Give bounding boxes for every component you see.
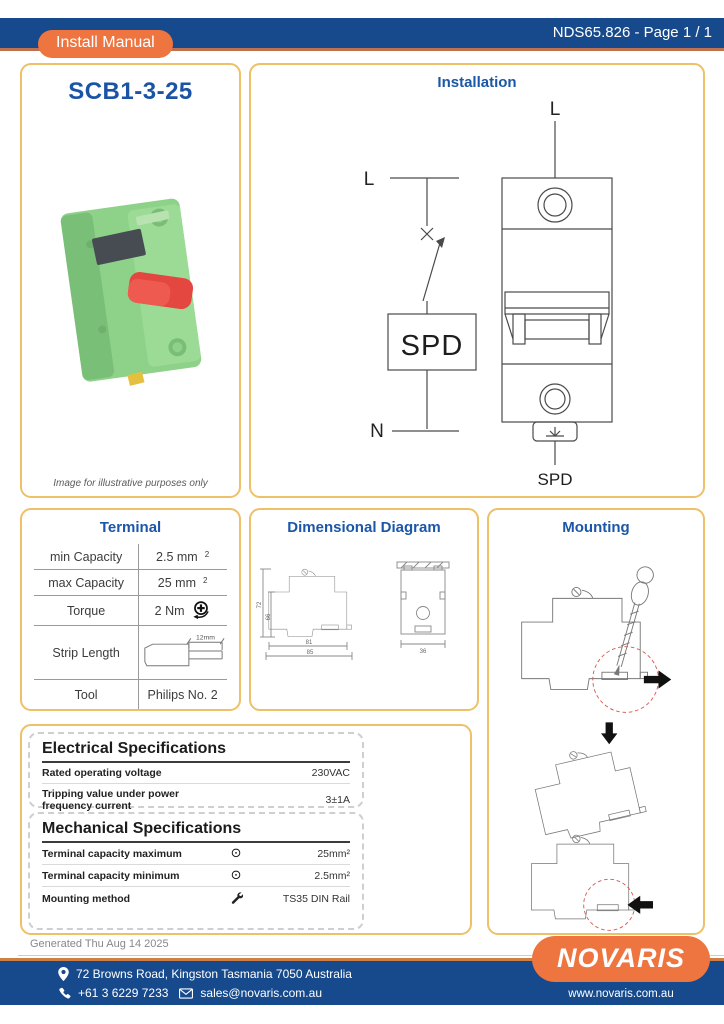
install-manual-badge: Install Manual	[38, 30, 173, 58]
down-arrow	[601, 722, 617, 744]
spd-box-label: SPD	[401, 330, 464, 362]
mounting-title: Mounting	[489, 519, 703, 536]
footer-address-row: 72 Browns Road, Kingston Tasmania 7050 A…	[58, 967, 352, 981]
footer-address: 72 Browns Road, Kingston Tasmania 7050 A…	[76, 967, 352, 981]
table-row: max Capacity 25 mm2	[34, 570, 227, 596]
wrench-icon	[214, 891, 257, 907]
spec-label: Rated operating voltage	[42, 767, 214, 779]
document-reference: NDS65.826 - Page 1 / 1	[553, 18, 712, 48]
footer-email: sales@novaris.com.au	[200, 986, 322, 1000]
spec-value: 2.5mm²	[258, 870, 350, 882]
unit-superscript: 2	[203, 576, 207, 585]
spec-row: Terminal capacity minimum ⊙ 2.5mm²	[42, 865, 350, 887]
mounting-steps-drawing	[489, 540, 703, 934]
spec-label: Tripping value under power frequency cur…	[42, 788, 196, 812]
electrical-specs-section: Electrical Specifications Rated operatin…	[28, 732, 364, 808]
table-row: min Capacity 2.5 mm2	[34, 544, 227, 570]
dimensional-title: Dimensional Diagram	[251, 519, 477, 536]
electrical-specs-title: Electrical Specifications	[42, 740, 350, 763]
terminal-title: Terminal	[22, 519, 239, 536]
push-left-arrow	[627, 896, 653, 914]
dim-width-inner: 81	[306, 640, 313, 646]
product-title: SCB1-3-25	[22, 78, 239, 106]
installation-title: Installation	[251, 74, 703, 91]
installation-diagram: L SPD N L SPD	[251, 93, 703, 493]
device-spd-label: SPD	[538, 470, 573, 489]
torque-screw-icon	[190, 600, 211, 621]
spec-value: 3±1A	[196, 794, 350, 806]
dim-depth: 36	[420, 649, 427, 655]
table-row: Torque 2 Nm	[34, 596, 227, 626]
image-caption: Image for illustrative purposes only	[22, 478, 239, 489]
mechanical-specs-title: Mechanical Specifications	[42, 820, 350, 843]
strip-length-drawing: 12mm	[138, 632, 228, 674]
product-panel: SCB1-3-25 Image for illustrative purpose…	[20, 63, 241, 498]
footer-contact-row: +61 3 6229 7233 sales@novaris.com.au	[58, 986, 322, 1000]
table-divider	[138, 544, 139, 709]
spec-label: Terminal capacity minimum	[42, 870, 214, 882]
strip-length-dim: 12mm	[196, 634, 215, 641]
product-photo	[34, 175, 230, 410]
row-label: Torque	[34, 604, 138, 618]
row-label: Strip Length	[34, 646, 138, 660]
novaris-logo: NOVARIS	[532, 936, 710, 982]
spec-label: Terminal capacity maximum	[42, 848, 214, 860]
table-row: Strip Length 12mm	[34, 626, 227, 680]
schematic-line-label: L	[364, 169, 375, 190]
schematic-neutral-label: N	[370, 421, 384, 442]
dimensional-drawing: 72 66 81 85 36	[251, 542, 477, 710]
installation-panel: Installation L SPD N L SPD	[249, 63, 705, 498]
spec-value: 230VAC	[214, 767, 350, 779]
dim-height-inner: 66	[266, 613, 272, 620]
row-value: 25 mm	[158, 576, 196, 590]
email-icon	[179, 988, 193, 999]
terminal-screw-icon: ⊙	[214, 869, 257, 882]
location-pin-icon	[58, 967, 69, 981]
terminal-screw-icon: ⊙	[214, 847, 257, 860]
spec-row: Terminal capacity maximum ⊙ 25mm²	[42, 843, 350, 865]
table-row: Tool Philips No. 2	[34, 680, 227, 709]
footer-phone: +61 3 6229 7233	[78, 986, 168, 1000]
dim-height-outer: 72	[257, 601, 263, 608]
unit-superscript: 2	[205, 550, 209, 559]
dimensional-panel: Dimensional Diagram 72 66 81 85	[249, 508, 479, 711]
row-value: Philips No. 2	[148, 688, 218, 702]
terminal-table: min Capacity 2.5 mm2 max Capacity 25 mm2…	[34, 544, 227, 709]
specifications-panel: Electrical Specifications Rated operatin…	[20, 724, 472, 935]
footer-website: www.novaris.com.au	[532, 988, 710, 1000]
row-value: 2 Nm	[155, 604, 185, 618]
spec-row: Rated operating voltage 230VAC	[42, 763, 350, 784]
spec-value: 25mm²	[258, 848, 350, 860]
mounting-panel: Mounting	[487, 508, 705, 935]
mechanical-specs-section: Mechanical Specifications Terminal capac…	[28, 812, 364, 930]
terminal-panel: Terminal min Capacity 2.5 mm2 max Capaci…	[20, 508, 241, 711]
screwdriver	[609, 565, 656, 677]
row-value: 2.5 mm	[156, 550, 198, 564]
device-line-label: L	[550, 99, 561, 120]
spec-label: Mounting method	[42, 893, 214, 905]
spec-row: Mounting method TS35 DIN Rail	[42, 887, 350, 911]
row-label: min Capacity	[34, 550, 138, 564]
spec-value: TS35 DIN Rail	[258, 893, 350, 905]
row-label: Tool	[34, 688, 138, 702]
row-label: max Capacity	[34, 576, 138, 590]
generated-timestamp: Generated Thu Aug 14 2025	[30, 938, 169, 950]
phone-icon	[58, 987, 71, 1000]
dim-width-outer: 85	[307, 650, 314, 656]
